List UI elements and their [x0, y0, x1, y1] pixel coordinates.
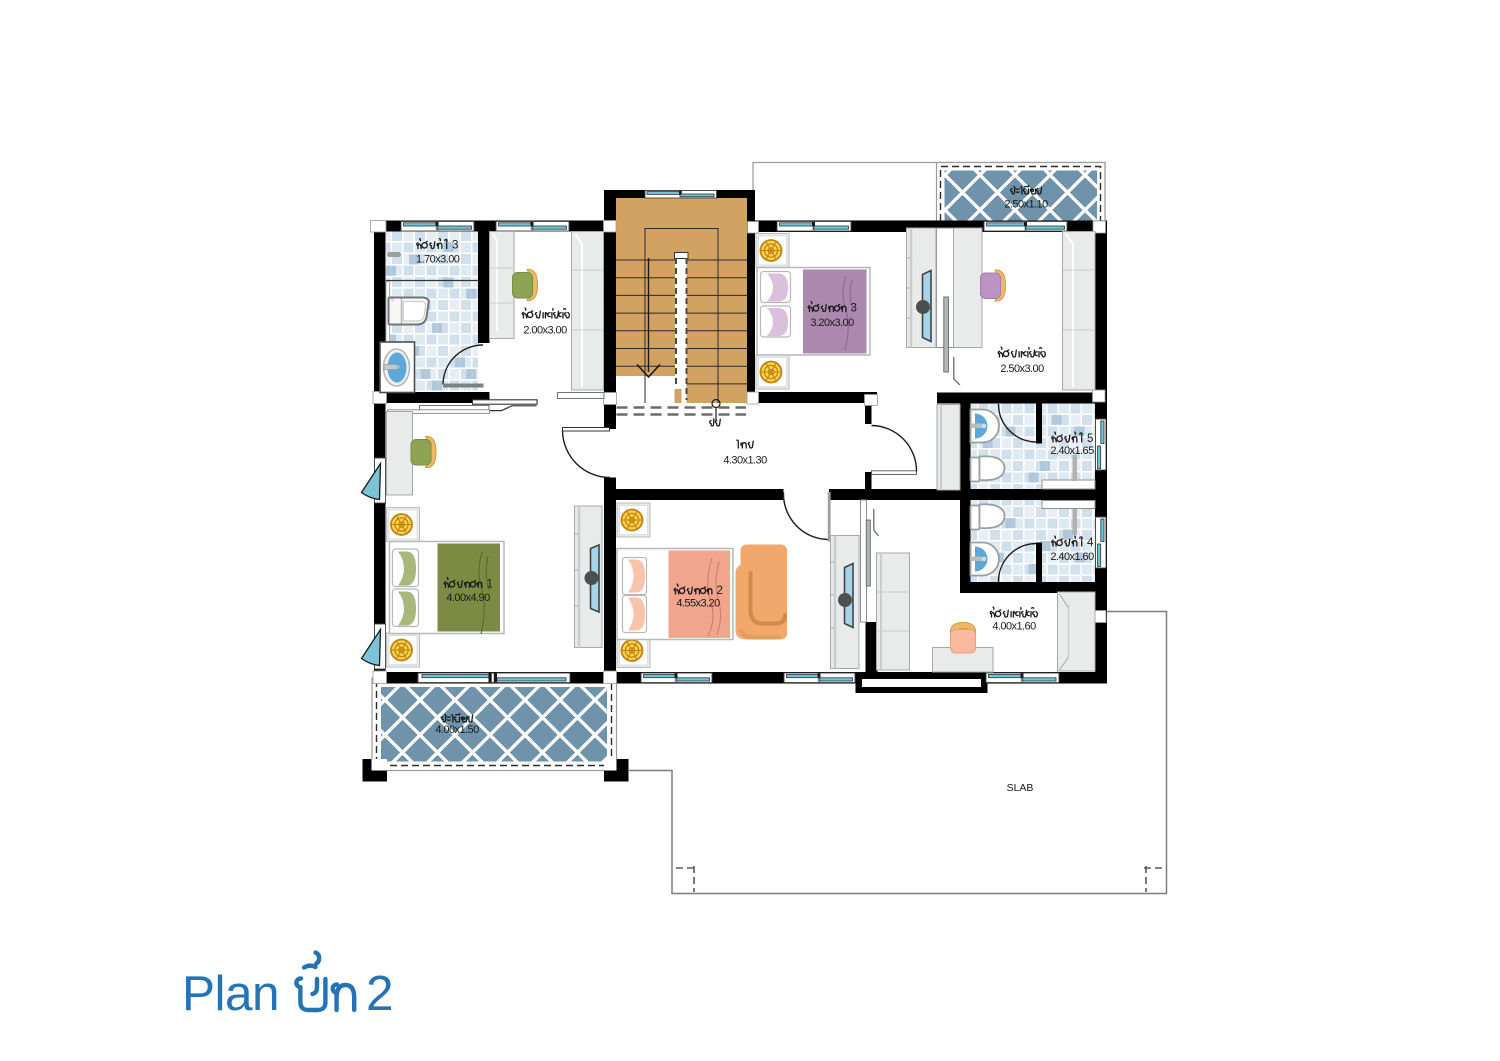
svg-text:2: 2	[366, 966, 394, 1021]
svg-text:SLAB: SLAB	[1007, 782, 1034, 794]
svg-text:3.20x3.00: 3.20x3.00	[810, 317, 854, 329]
svg-text:4.30x1.30: 4.30x1.30	[723, 455, 767, 467]
svg-text:1.70x3.00: 1.70x3.00	[416, 254, 460, 266]
svg-text:4: 4	[1087, 537, 1094, 549]
svg-text:3: 3	[452, 240, 458, 252]
svg-text:2.40x1.65: 2.40x1.65	[1050, 445, 1094, 457]
svg-text:2: 2	[717, 585, 723, 597]
svg-text:2.50x3.00: 2.50x3.00	[1000, 363, 1044, 375]
svg-text:5: 5	[1087, 433, 1093, 445]
svg-text:4.00x1.50: 4.00x1.50	[435, 724, 479, 736]
svg-text:4.00x4.90: 4.00x4.90	[446, 592, 490, 604]
svg-text:4.00x1.60: 4.00x1.60	[992, 621, 1036, 633]
svg-text:4.55x3.20: 4.55x3.20	[676, 598, 720, 610]
svg-text:3: 3	[851, 303, 857, 315]
svg-text:2.50x1.10: 2.50x1.10	[1004, 199, 1048, 211]
svg-text:2.40x1.60: 2.40x1.60	[1050, 551, 1094, 563]
svg-text:2.00x3.00: 2.00x3.00	[523, 325, 567, 337]
svg-text:Plan: Plan	[182, 966, 279, 1021]
svg-text:1: 1	[487, 579, 493, 591]
